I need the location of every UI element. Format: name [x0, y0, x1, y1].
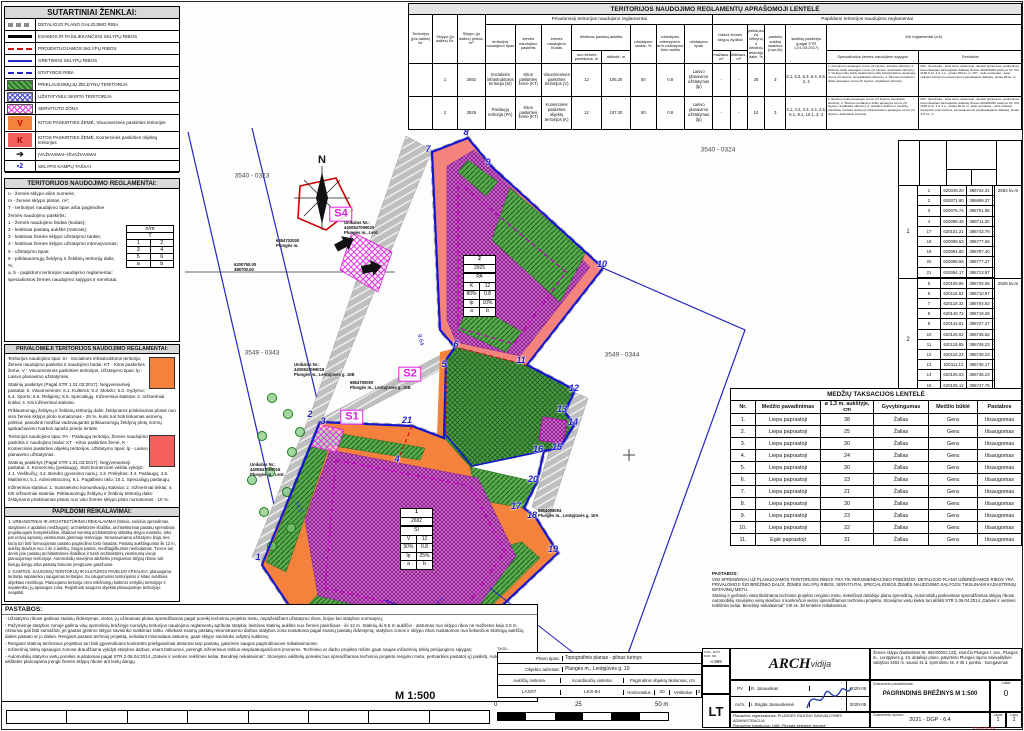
coords-group-2: 2 5620109.96386726.066620116.63386710.87… [899, 279, 1021, 401]
legend-row: UŽSTATYMUI SKIRTA TERITORIJA [5, 91, 179, 103]
coords-row: 17620101.21386743.79 [918, 227, 994, 237]
tree-row: 2.Liepa paprastoji25 ŽaliasGeraIšsaugoma… [731, 426, 1022, 438]
logo-cell: ARCH vidija [730, 648, 870, 680]
tree-row: 4.Liepa paprastoji24 ŽaliasGeraIšsaugoma… [731, 450, 1022, 462]
legend-row: SERVITUTO ZONA [5, 103, 179, 115]
legend-row: KKITOS PASKIRTIES ŽEMĖ, Komercinės paski… [5, 132, 179, 149]
commercial-land-swatch-icon: K [5, 132, 36, 148]
coords-row: 20620088.66386777.27 [918, 257, 994, 267]
corner-point-icon: ▪2 [5, 161, 36, 172]
trees-table: MEDŽIŲ TAKSACIJOS LENTELĖ Nr. Medžio pav… [730, 388, 1022, 546]
tree-row: 11.Eglė paprastoji31 ŽaliasGeraIšsaugoma… [731, 534, 1022, 546]
buildup-hatch-icon [5, 91, 36, 102]
logo-arch: ARCH [769, 656, 811, 673]
legend-row: STATYBOS RIBA [5, 67, 179, 79]
plan-boundary-line-icon [5, 19, 36, 30]
legend-row: PRIKLAUSOMŲJŲ ŽELDYNŲ TERITORIJA [5, 79, 179, 91]
existing-parcel-line-icon [5, 31, 36, 42]
fold-ruler [6, 710, 490, 724]
papildomi-text: 1. URBANISTINIAI IR ARCHITEKTŪRINIAI REI… [8, 519, 176, 567]
pastabos-right: PASTABOS: VISI SPRENDINIAI UŽ PLANUOJAMO… [712, 571, 1023, 609]
coords-row: 2620071.90386699.37 [918, 196, 994, 206]
coords-row: 14620106.63386746.23 [918, 370, 994, 380]
priv-block-si-zeldynai: Priklausomųjų želdynų ir želdinių terito… [8, 408, 176, 432]
pastabos-bullet: - Užstatymo ribose galimas statinių išdė… [5, 616, 534, 622]
greenery-hatch-icon [5, 79, 36, 90]
coords-row: 12620115.23386748.23 [918, 350, 994, 360]
regulation-table: TERITORIJOS NAUDOJIMO REGLAMENTŲ APRAŠOM… [408, 3, 1022, 130]
tree-row: 6.Liepa paprastoji23 ŽaliasGeraIšsaugoma… [731, 474, 1022, 486]
legend-row: ➔ĮVAŽIAVIMAI–IŠVAŽIAVIMAI [5, 149, 179, 161]
coords-row: 10620126.52386745.62 [918, 330, 994, 340]
orange-swatch [149, 357, 175, 389]
coords-row: 4620098.46386711.20 [918, 217, 994, 227]
scalebar-50: 50 m [655, 702, 668, 708]
date-stamp: 2020-05-28 [972, 726, 995, 731]
legend-row: ▪2SKLYPO KAMPŲ TAŠKAI [5, 161, 179, 173]
legend-row: GRETIMOS SKLYPŲ RIBOS [5, 55, 179, 67]
public-land-swatch-icon: V [5, 115, 36, 131]
coords-row: 5620109.96386726.06 [918, 279, 994, 289]
coords-row: 19620094.80386787.40 [918, 247, 994, 257]
tree-row: 8.Liepa paprastoji30 ŽaliasGeraIšsaugoma… [731, 498, 1022, 510]
coordinates-table: 1 1620049.20386742.312620071.90386699.37… [898, 140, 1022, 402]
doc-name-cell: Dokumento pavadinimas: PAGRINDINIS BRĖŽI… [870, 680, 990, 712]
signatures-cell: PV R. Janauskas 2020-05 Arch. I. Brigita… [730, 680, 870, 712]
coords-row: 7620119.32386704.62 [918, 299, 994, 309]
pastabos-bullet: - Pažymėtoje statybos zonoje galima visų… [5, 623, 534, 640]
coords-group-1: 1 1620049.20386742.312620071.90386699.37… [899, 186, 1021, 279]
coords-row: 18620098.63386777.66 [918, 237, 994, 247]
coords-row: 13620111.12386746.17 [918, 360, 994, 370]
tree-row: 5.Liepa paprastoji30 ŽaliasGeraIšsaugoma… [731, 462, 1022, 474]
pastabos-bullet: - Rengiant statinių techninius projektus… [5, 641, 534, 647]
servitude-hatch-icon [5, 103, 36, 114]
trees-table-title: MEDŽIŲ TAKSACIJOS LENTELĖ [731, 389, 1022, 401]
plan-info-table: Plano tipas: Topografinis planas - pilna… [497, 652, 702, 698]
reglamentai-title: TERITORIJOS NAUDOJIMO REGLAMENTAI: [5, 179, 179, 189]
tiksl-label: TIKSL.: [497, 647, 510, 651]
regulation-row-1: 12692 Socialinės infrastruktūros teritor… [409, 64, 1022, 97]
scale-text: M 1:500 [395, 690, 435, 702]
regulation-table-title: TERITORIJOS NAUDOJIMO REGLAMENTŲ APRAŠOM… [409, 4, 1022, 15]
legend-title: SUTARTINIAI ŽENKLAI: [5, 7, 179, 19]
projected-parcel-line-icon [5, 43, 36, 54]
legend-row: DETALIOJO PLANO GALIOJIMO RIBA [5, 19, 179, 31]
pastabos-right-title: PASTABOS: [712, 571, 738, 576]
entrance-arrow-icon: ➔ [5, 149, 36, 160]
tree-row: 10.Liepa paprastoji22 ŽaliasGeraIšsaugom… [731, 522, 1022, 534]
gamtos-text: 2. GAMTOS, SAUGOMŲ TERITORIJŲ IR KULTŪRO… [8, 569, 176, 596]
privalomieji-panel: PRIVALOMIEJI TERITORIJOS NAUDOJIMO REGLA… [4, 344, 180, 602]
pastabos-left-title: PASTABOS: [2, 605, 537, 615]
pastabos-bullet: - Automobilių statymo vietų poreikis nus… [5, 654, 534, 665]
reglamentai-panel: TERITORIJOS NAUDOJIMO REGLAMENTAI: n - ž… [4, 178, 180, 342]
pastabos-bullet: - Inžinerinių tinklų apsaugos zonose dra… [5, 647, 534, 653]
scalebar-0: 0 [494, 702, 497, 708]
legend-row: PROJEKTUOJAMOS SKLYPŲ RIBOS [5, 43, 179, 55]
coords-row: 6620116.63386710.87 [918, 289, 994, 299]
logo-vidija: vidija [811, 659, 832, 669]
lapu-cell: Lapų 1 [1006, 712, 1022, 728]
pastabos-right-p1: VISI SPRENDINIAI UŽ PLANUOJAMOS TERITORI… [712, 577, 1023, 593]
project-description: Žemės sklypo (kadastrinis Nr. 6824/0001:… [870, 648, 1022, 680]
legend-row: VKITOS PASKIRTIES ŽEMĖ, Visuomeninės pas… [5, 115, 179, 132]
adjacent-parcel-line-icon [5, 55, 36, 66]
coords-row: 11620119.85386746.23 [918, 340, 994, 350]
legend-row: ESAMOS IR PASILIEKANČIOS SKLYPŲ RIBOS [5, 31, 179, 43]
signature-icon [803, 682, 853, 712]
priv-block-pa-zeldynai: Inžineriniai statiniai: 1. Susisiekimo k… [8, 485, 176, 503]
lt-spacer-cell [702, 666, 730, 694]
tree-row: 9.Liepa paprastoji23 ŽaliasGeraIšsaugoma… [731, 510, 1022, 522]
organizer-cell: Planavimo organizatorius: PLUNGĖS RAJONO… [730, 712, 870, 728]
construction-line-icon [5, 67, 36, 78]
coords-row: 9620144.61386727.27 [918, 319, 994, 329]
papildomi-title: PAPILDOMI REIKALAVIMAI: [5, 507, 179, 517]
lt-badge: LT [702, 694, 730, 728]
pastabos-left-list: - Užstatymo ribose galimas statinių išdė… [2, 615, 537, 667]
privalomieji-title: PRIVALOMIEJI TERITORIJOS NAUDOJIMO REGLA… [5, 345, 179, 354]
tree-row: 3.Liepa paprastoji30 ŽaliasGeraIšsaugoma… [731, 438, 1022, 450]
coords-row: 21620094.17386713.87 [918, 268, 994, 278]
regulation-symbol-table: n/m T 12 34 56 ab [126, 225, 174, 268]
north-compass-icon [294, 166, 352, 230]
scale-bar [497, 712, 669, 721]
tree-row: 1.Liepa paprastoji38 ŽaliasGeraIšsaugoma… [731, 414, 1022, 426]
coords-row: 1620049.20386742.31 [918, 186, 994, 196]
plot-2-area [432, 138, 603, 365]
detailed-plan-sheet: { "legend": { "title": "SUTARTINIAI ŽENK… [0, 0, 1024, 731]
scalebar-25: 25 [575, 702, 582, 708]
red-swatch [149, 435, 175, 467]
regulation-row-2: 22925 Paslaugų teritorija (PA)Kitos pask… [409, 97, 1022, 130]
kval-cell: KVAL. PATV. DOK. NR. A 889 [702, 648, 730, 666]
laida-cell: Laida 0 [990, 680, 1022, 712]
pastabos-left-panel: PASTABOS: - Užstatymo ribose galimas sta… [1, 604, 538, 702]
reglamentai-lines: n - žemės sklypo eilės numeris; m - žemė… [5, 189, 121, 286]
legend-panel: SUTARTINIAI ŽENKLAI: DETALIOJO PLANO GAL… [4, 6, 180, 172]
tree-row: 7.Liepa paprastoji21 ŽaliasGeraIšsaugoma… [731, 486, 1022, 498]
pastabos-right-p2: Statinių ir gerbūvio vieta tikslinama te… [712, 593, 1023, 609]
coords-row: 8620148.72386719.26 [918, 309, 994, 319]
coords-row: 3620076.74386701.95 [918, 206, 994, 216]
